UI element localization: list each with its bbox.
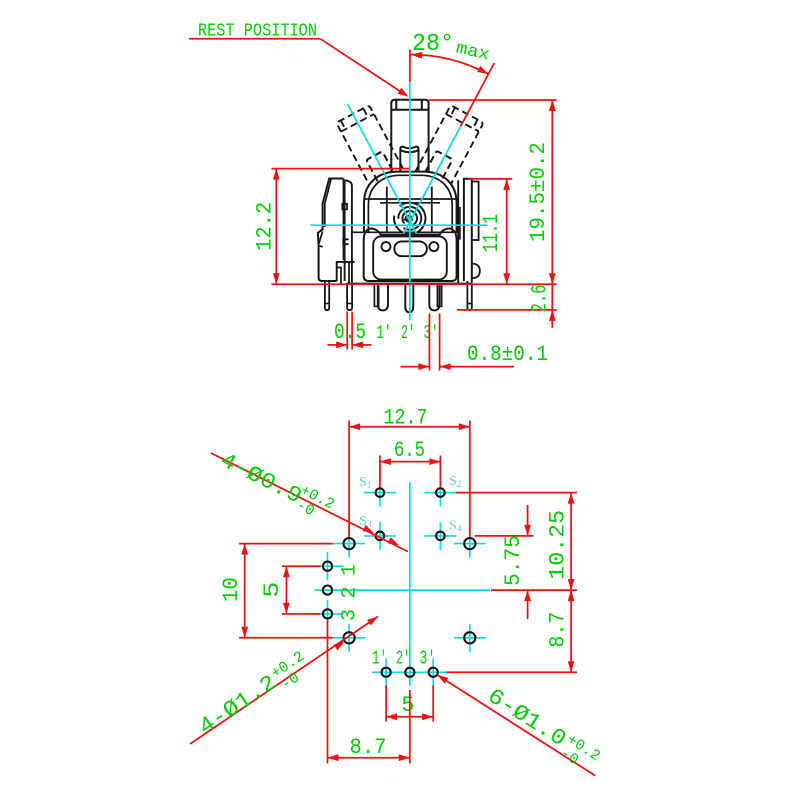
svg-text:3: 3	[339, 609, 362, 621]
svg-text:10.25: 10.25	[546, 510, 571, 580]
svg-text:1: 1	[339, 564, 362, 576]
svg-text:5: 5	[260, 582, 285, 598]
svg-text:19.5±0.2: 19.5±0.2	[526, 142, 551, 242]
svg-text:6.5: 6.5	[394, 438, 425, 463]
svg-text:S4: S4	[449, 519, 462, 535]
svg-text:2': 2'	[396, 648, 410, 670]
svg-text:5: 5	[401, 693, 414, 718]
svg-text:6-Ø1.0: 6-Ø1.0	[483, 684, 571, 752]
svg-text:0.5: 0.5	[334, 320, 366, 345]
svg-text:5.75: 5.75	[501, 535, 526, 586]
svg-text:2': 2'	[401, 322, 415, 344]
svg-text:10: 10	[219, 577, 244, 602]
svg-text:12.2: 12.2	[252, 202, 277, 251]
svg-text:4-Ø0.9: 4-Ø0.9	[216, 448, 306, 510]
svg-text:11.1: 11.1	[479, 214, 504, 252]
svg-text:3': 3'	[420, 648, 436, 670]
svg-text:1': 1'	[377, 322, 392, 344]
svg-text:1': 1'	[372, 648, 387, 670]
svg-text:0.8±0.1: 0.8±0.1	[467, 342, 548, 367]
svg-text:S2: S2	[449, 474, 462, 490]
svg-text:2: 2	[339, 586, 362, 598]
svg-text:2.6: 2.6	[527, 285, 552, 313]
svg-text:8.7: 8.7	[350, 735, 387, 760]
svg-text:28°: 28°	[412, 31, 454, 58]
svg-text:S1: S1	[359, 475, 372, 491]
svg-text:3': 3'	[424, 322, 439, 344]
svg-text:4-Ø1.2: 4-Ø1.2	[194, 670, 281, 740]
svg-text:REST POSITION: REST POSITION	[198, 22, 317, 42]
svg-text:12.7: 12.7	[384, 406, 428, 431]
svg-text:8.7: 8.7	[546, 612, 571, 648]
